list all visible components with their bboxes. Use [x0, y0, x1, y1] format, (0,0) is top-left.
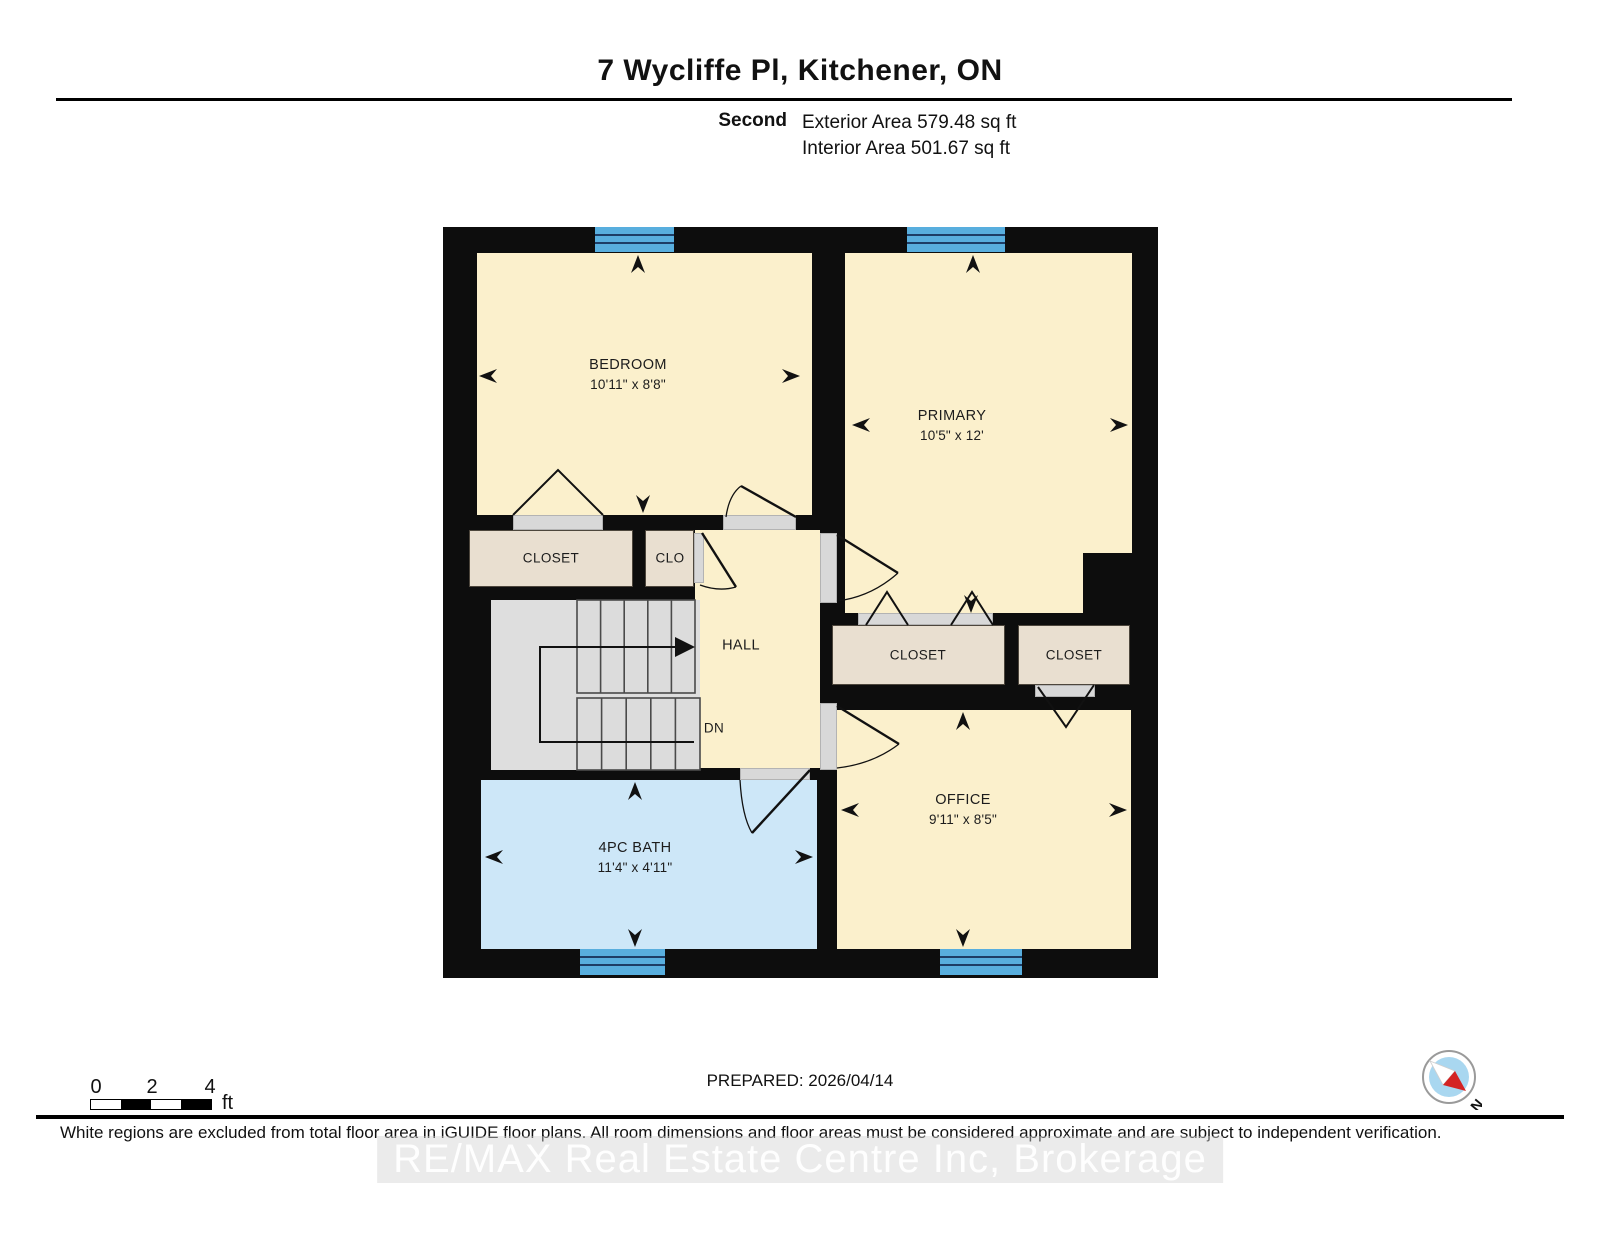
bath-label: 4PC BATH 11'4" x 4'11" [598, 839, 673, 877]
opening-primary-door [820, 533, 837, 603]
scale-unit-label: ft [222, 1092, 233, 1115]
opening-right-closet [1035, 685, 1095, 697]
compass-icon: N [1420, 1048, 1482, 1110]
primary-wall-notch [1083, 553, 1132, 613]
primary-label: PRIMARY 10'5" x 12' [918, 407, 987, 445]
prepared-date-label: PREPARED: 2026/04/14 [0, 1071, 1600, 1091]
closet-left-label: CLOSET [523, 549, 579, 568]
brokerage-watermark: RE/MAX Real Estate Centre Inc, Brokerage [377, 1136, 1223, 1183]
footer-divider [36, 1115, 1564, 1119]
exterior-area-label: Exterior Area 579.48 sq ft [802, 110, 1016, 136]
floor-plan: BEDROOM 10'11" x 8'8" PRIMARY 10'5" x 12… [443, 227, 1158, 978]
compass-north-label: N [1466, 1095, 1482, 1110]
opening-clo-door [694, 533, 704, 583]
opening-primary-closet [858, 613, 993, 625]
closet-small-label: CLO [656, 549, 685, 568]
page-title: 7 Wycliffe Pl, Kitchener, ON [0, 54, 1600, 88]
hall-label: HALL [722, 637, 760, 656]
opening-bath-door [740, 768, 810, 780]
stairs-dn-label: DN [704, 719, 724, 738]
window-bath [580, 949, 665, 975]
closet-mid-label: CLOSET [890, 646, 946, 665]
office-label: OFFICE 9'11" x 8'5" [929, 791, 997, 829]
scale-bar [90, 1099, 212, 1110]
bedroom-label: BEDROOM 10'11" x 8'8" [589, 356, 667, 394]
opening-bedroom-closet [513, 515, 603, 530]
window-bedroom [595, 227, 674, 252]
office-room [837, 710, 1131, 949]
opening-office-door [820, 703, 837, 770]
window-office [940, 949, 1022, 975]
header-divider [56, 98, 1512, 101]
closet-right-label: CLOSET [1046, 646, 1102, 665]
floor-name-label: Second [718, 110, 787, 132]
area-summary: Exterior Area 579.48 sq ft Interior Area… [802, 110, 1016, 162]
interior-area-label: Interior Area 501.67 sq ft [802, 136, 1016, 162]
window-primary [907, 227, 1005, 252]
opening-bedroom-door [723, 515, 796, 530]
stairwell [491, 600, 700, 770]
